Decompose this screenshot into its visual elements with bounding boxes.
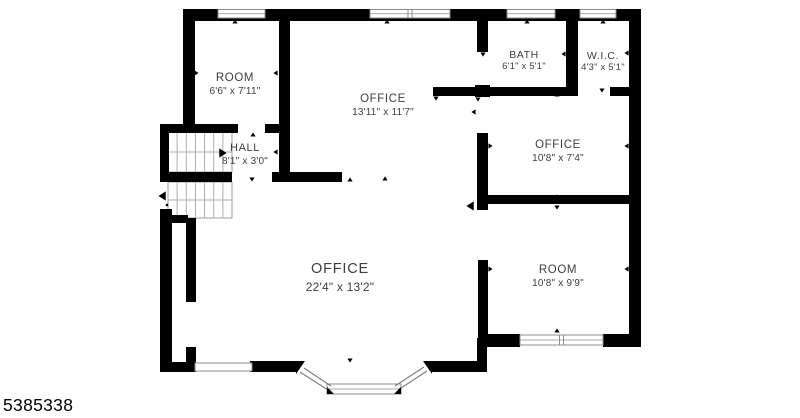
room-dimensions: 6'1" x 5'1"	[502, 62, 546, 73]
room-label-wic: W.I.C. 4'3" x 5'1"	[581, 50, 625, 74]
floorplan-drawing	[0, 0, 800, 418]
room-dimensions: 8'1" x 3'0"	[222, 156, 268, 168]
room-name: W.I.C.	[581, 50, 625, 62]
room-dimensions: 10'8" x 7'4"	[532, 153, 584, 165]
dimension-tick	[488, 143, 492, 148]
wall	[485, 334, 520, 347]
wall	[279, 20, 290, 182]
room-label-hall: HALL 8'1" x 3'0"	[222, 142, 268, 167]
wall	[160, 124, 238, 133]
wall	[610, 87, 632, 96]
wall	[478, 260, 488, 340]
room-dimensions: 4'3" x 5'1"	[581, 63, 625, 74]
wall	[629, 9, 641, 347]
room-label-office-right: OFFICE 10'8" x 7'4"	[532, 139, 584, 165]
room-name: OFFICE	[352, 93, 414, 106]
door-arrow	[158, 191, 165, 200]
dimension-tick	[433, 96, 438, 100]
dimension-tick	[480, 52, 485, 56]
wall	[160, 362, 196, 372]
wall	[160, 209, 172, 372]
wall	[477, 15, 488, 52]
wall	[603, 334, 641, 347]
room-name: OFFICE	[306, 261, 374, 278]
room-dimensions: 6'6" x 7'11"	[210, 86, 261, 98]
bay-window-glass-line	[398, 371, 427, 390]
dimension-tick	[347, 358, 352, 362]
window	[195, 363, 252, 371]
room-label-bath: BATH 6'1" x 5'1"	[502, 49, 546, 73]
room-name: BATH	[502, 49, 546, 61]
room-label-office-top: OFFICE 13'11" x 11'7"	[352, 93, 414, 119]
dimension-tick	[194, 70, 198, 75]
dimension-tick	[471, 109, 475, 114]
photo-id-label: 5385338	[3, 395, 73, 416]
dimension-tick	[249, 177, 254, 181]
dimension-tick	[624, 143, 628, 148]
room-label-room-bottomright: ROOM 10'8" x 9'9"	[532, 264, 584, 290]
dimension-tick	[250, 132, 255, 136]
room-name: ROOM	[532, 264, 584, 277]
wall	[265, 124, 281, 133]
dimension-tick	[382, 176, 387, 180]
room-name: OFFICE	[532, 139, 584, 152]
wall	[250, 361, 297, 372]
room-label-room-topleft: ROOM 6'6" x 7'11"	[210, 72, 261, 98]
dimension-tick	[554, 328, 559, 332]
dimension-tick	[273, 70, 277, 75]
dimension-tick	[554, 205, 559, 209]
room-label-office-bottom: OFFICE 22'4" x 13'2"	[306, 261, 374, 294]
dimension-tick	[488, 266, 492, 271]
room-dimensions: 13'11" x 11'7"	[352, 107, 414, 119]
room-dimensions: 22'4" x 13'2"	[306, 281, 374, 295]
room-dimensions: 10'8" x 9'9"	[532, 278, 584, 290]
dimension-tick	[624, 50, 628, 55]
dimension-tick	[624, 266, 628, 271]
wall	[162, 172, 232, 182]
dimension-tick	[599, 88, 604, 92]
wall	[566, 20, 578, 88]
bay-wall-wedge	[423, 361, 432, 374]
dimension-tick	[561, 51, 565, 56]
door-arrow-dot	[166, 204, 169, 207]
wall	[183, 9, 195, 130]
room-name: HALL	[222, 142, 268, 155]
bay-window-glass-line	[395, 367, 424, 386]
wall	[477, 195, 641, 204]
door-arrow	[466, 201, 473, 210]
room-name: ROOM	[210, 72, 261, 85]
wall	[186, 218, 196, 302]
dimension-tick	[347, 177, 352, 181]
dimension-tick	[475, 97, 480, 101]
dimension-tick	[273, 149, 277, 154]
floorplan-page: ROOM 6'6" x 7'11" OFFICE 13'11" x 11'7" …	[0, 0, 800, 418]
wall	[169, 215, 188, 223]
